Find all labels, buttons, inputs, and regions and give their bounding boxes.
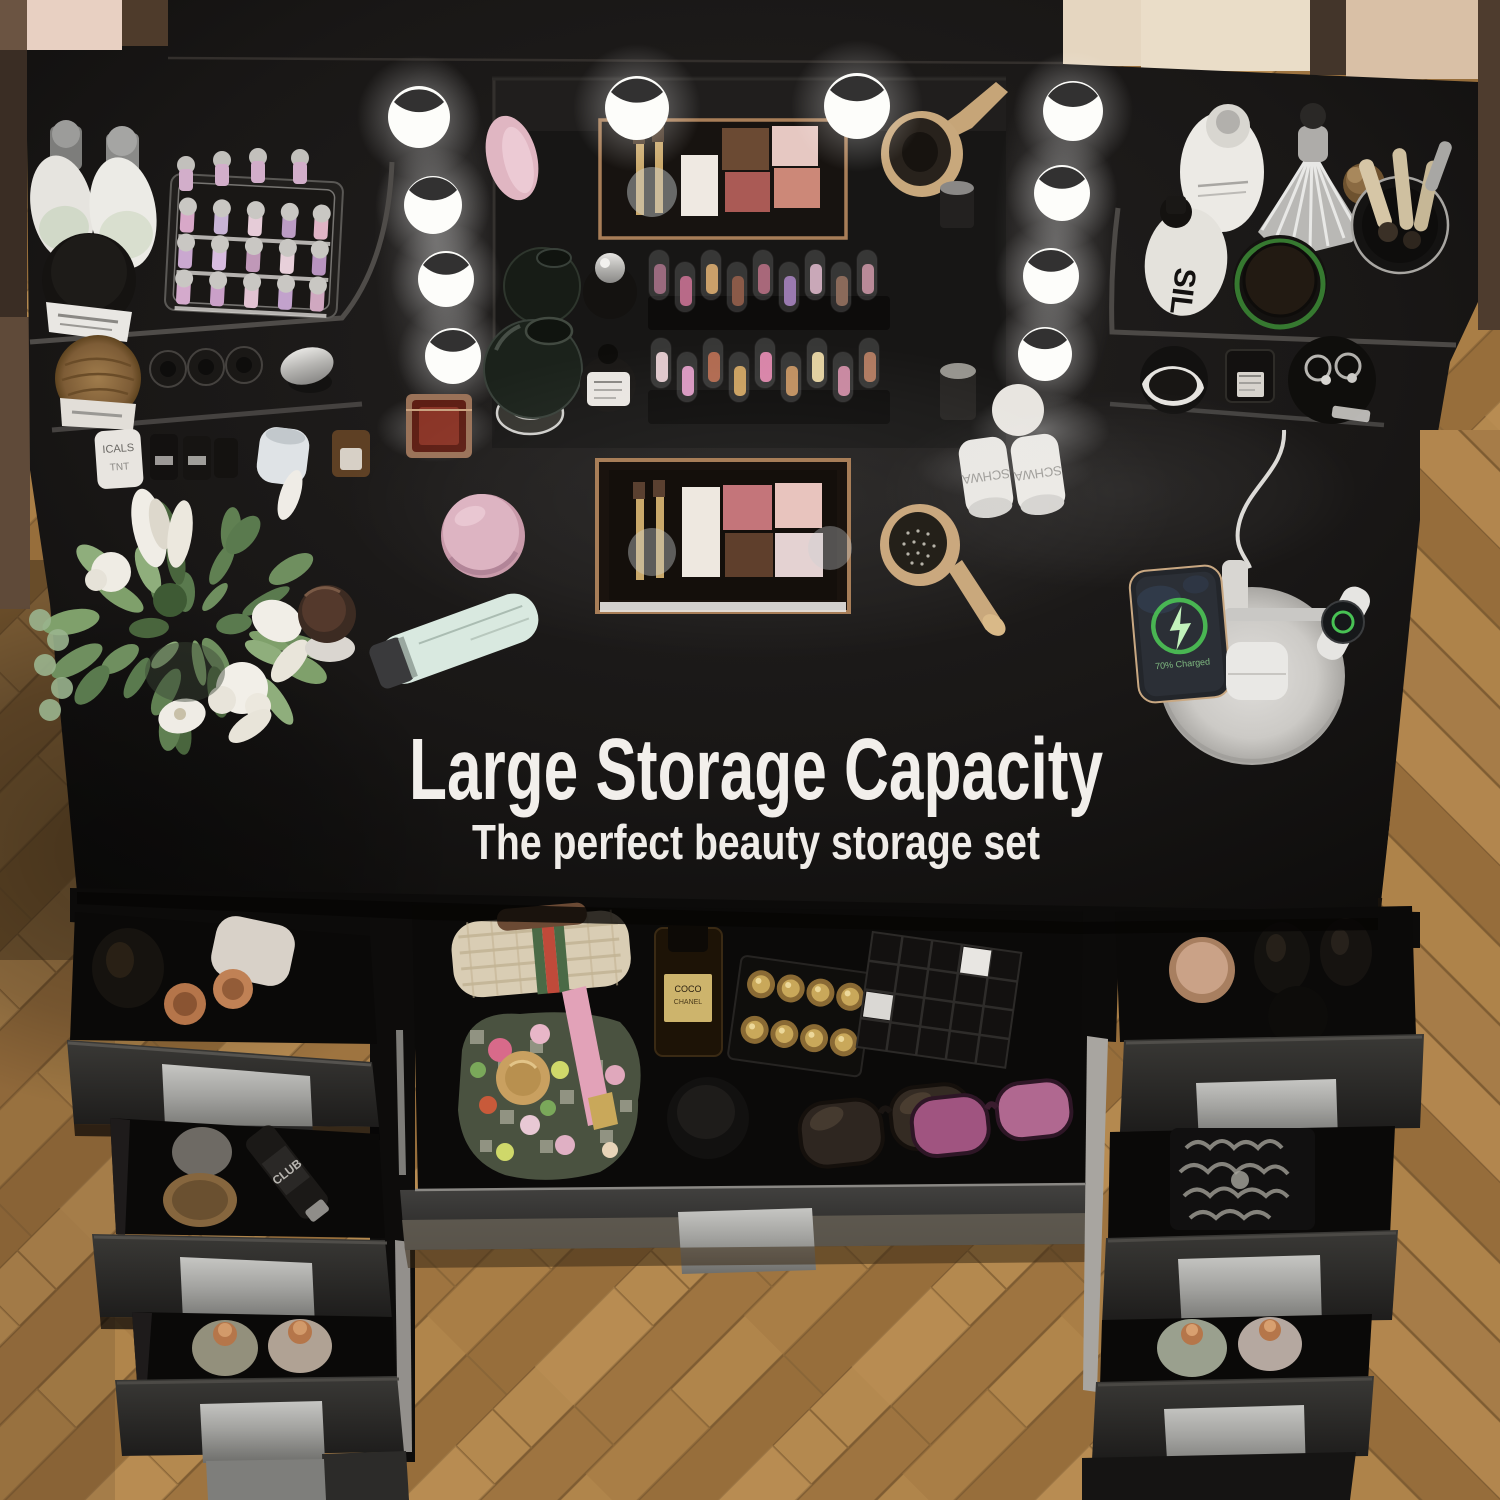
svg-text:CHANEL: CHANEL [674,999,703,1006]
svg-text:COCO: COCO [675,984,702,994]
svg-text:ICALS: ICALS [102,442,135,456]
svg-text:TNT: TNT [110,461,130,473]
svg-text:SIL: SIL [1163,266,1201,316]
svg-text:The perfect beauty storage: The perfect beauty storage set [472,816,1040,870]
svg-text:Large Storage Capacity: Large Storage Capacity [409,721,1103,818]
